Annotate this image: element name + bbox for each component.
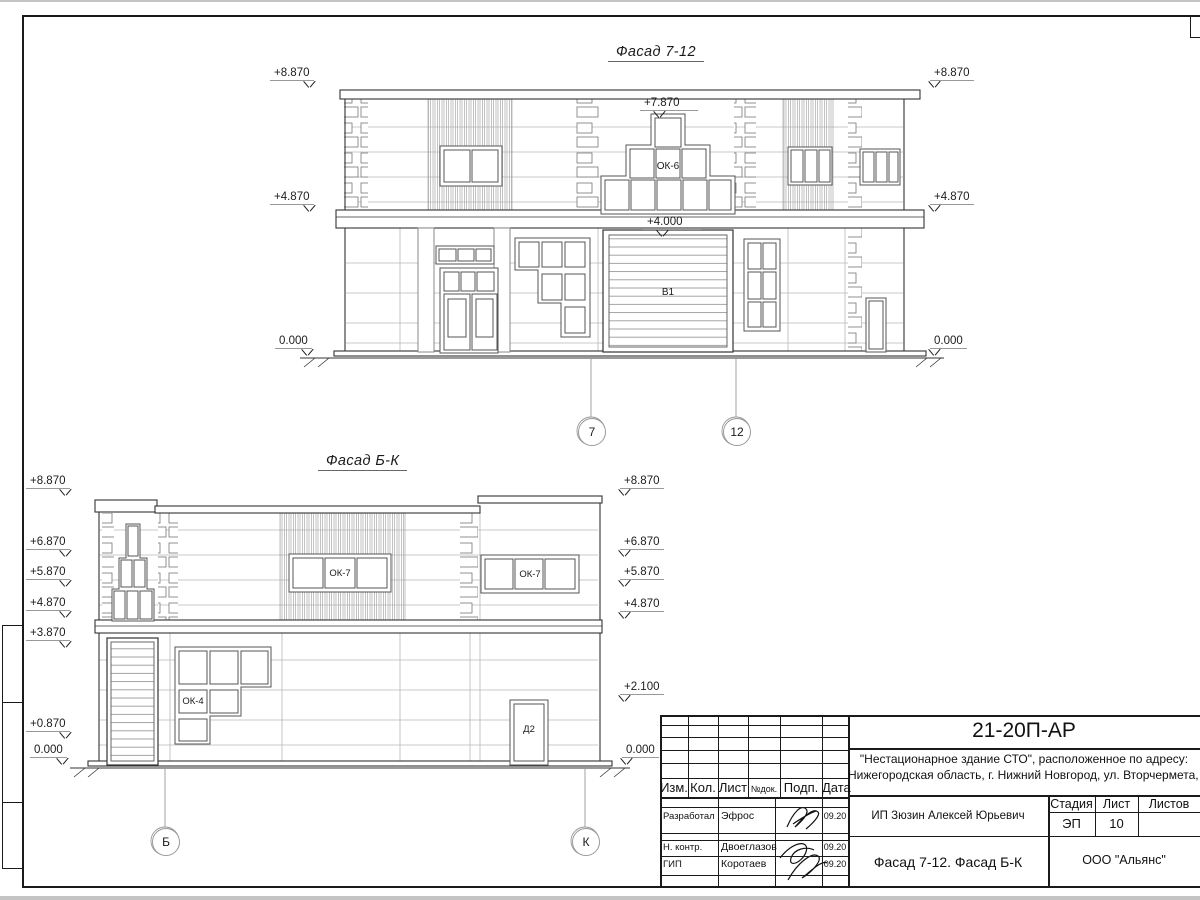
label-ok6: ОК-6: [648, 161, 688, 172]
elevation-mark: +6.870: [620, 536, 664, 550]
role-gip: ГИП: [663, 859, 682, 870]
gate-side-view: [107, 638, 158, 765]
elevation-mark: +8.870: [930, 67, 974, 81]
parapet-cap-mid: [155, 506, 480, 513]
parapet-cap: [340, 90, 920, 99]
elevation-mark: +4.000: [643, 216, 701, 230]
col-podp: Подп.: [780, 780, 822, 795]
elevation-mark: +6.870: [26, 536, 70, 550]
axis-bubble-7: 7: [578, 418, 606, 446]
parapet-cap-right: [478, 496, 602, 503]
sheet-title: Фасад 7-12. Фасад Б-К: [848, 854, 1048, 870]
col-data: Дата: [822, 780, 848, 795]
name-gip: Коротаев: [721, 858, 766, 870]
elevation-mark: +4.870: [26, 597, 70, 611]
col-izm: Изм.: [660, 780, 688, 795]
facade-7-12-title: Фасад 7-12: [608, 44, 704, 62]
name-ncontrol: Двоеглазов: [721, 841, 777, 853]
project-name-line2: Нижегородская область, г. Нижний Новгоро…: [848, 768, 1200, 782]
col-ndok: №док.: [748, 784, 780, 794]
interfloor-band-bk: [95, 620, 602, 633]
elevation-mark: +5.870: [620, 566, 664, 580]
facade-b-k-drawing: [70, 496, 630, 855]
corner-stamp-box: [1190, 15, 1191, 37]
elevation-mark: +8.870: [270, 67, 314, 81]
elevation-mark: +7.870: [640, 97, 698, 111]
window-3pane-left: [788, 147, 832, 185]
elevation-mark: +0.870: [26, 718, 70, 732]
small-door: [866, 298, 886, 352]
ground-hatch-bk: [74, 768, 625, 777]
window-3pane-right: [860, 149, 900, 185]
elevation-mark: 0.000: [622, 744, 659, 758]
elevation-mark: +8.870: [26, 475, 70, 489]
list-label: Лист: [1095, 797, 1138, 811]
signatures: [780, 808, 827, 880]
window-2pane: [440, 146, 502, 186]
elevation-mark: +4.870: [620, 598, 664, 612]
date-developer: 09.20: [823, 811, 847, 821]
elevation-mark: +8.870: [620, 475, 664, 489]
client-name: ИП Зюзин Алексей Юрьевич: [848, 810, 1048, 822]
role-developer: Разработал: [663, 811, 715, 822]
axis-bubble-k: К: [572, 828, 600, 856]
elevation-mark: 0.000: [930, 335, 967, 349]
elevation-mark: +4.870: [930, 191, 974, 205]
label-v1: В1: [650, 287, 686, 298]
sheet-number: 10: [1095, 816, 1138, 831]
company-name: ООО "Альянс": [1048, 853, 1200, 867]
stage-label: Стадия: [1048, 797, 1095, 811]
axis-bubble-12: 12: [723, 418, 751, 446]
elevation-mark: 0.000: [30, 744, 67, 758]
elevation-mark: +3.870: [26, 627, 70, 641]
date-ncontrol: 09.20: [823, 842, 847, 852]
elevation-mark: 0.000: [275, 335, 312, 349]
parapet-cap-left: [95, 500, 157, 512]
elevation-mark: +4.870: [270, 191, 314, 205]
stepped-window-narrow: [112, 524, 154, 621]
elevation-mark: +5.870: [26, 566, 70, 580]
label-ok7-right: ОК-7: [510, 569, 550, 580]
project-name-line1: "Нестационарное здание СТО", расположенн…: [848, 752, 1200, 766]
entrance-door: [440, 268, 498, 353]
date-gip: 09.20: [823, 859, 847, 869]
window-2x3: [744, 239, 780, 331]
label-d2: Д2: [511, 724, 547, 735]
role-ncontrol: Н. контр.: [663, 842, 702, 853]
sheet-edge-top: [0, 0, 1200, 2]
facade-b-k-title: Фасад Б-К: [318, 453, 407, 471]
col-list: Лист: [718, 780, 748, 795]
margin-cells: [2, 625, 3, 868]
listov-label: Листов: [1138, 797, 1200, 811]
col-kol: Кол.: [688, 780, 718, 795]
axis-bubble-b: Б: [152, 828, 180, 856]
sheet-edge-bottom: [0, 896, 1200, 900]
drawing-sheet: Фасад 7-12 Фасад Б-К +8.870 +4.870 0.000…: [0, 0, 1200, 900]
label-ok7-left: ОК-7: [320, 568, 360, 579]
label-ok4: ОК-4: [173, 696, 213, 707]
stepped-window-right-of-door: [515, 238, 590, 337]
name-developer: Эфрос: [721, 810, 754, 822]
stage-value: ЭП: [1048, 816, 1095, 831]
facade-7-12-drawing: [300, 90, 944, 445]
strip-window: [436, 246, 494, 264]
doc-number: 21-20П-АР: [848, 719, 1200, 743]
axis-leaders-b-k: [151, 768, 599, 855]
elevation-mark: +2.100: [620, 681, 664, 695]
ground-hatch: [304, 358, 941, 367]
